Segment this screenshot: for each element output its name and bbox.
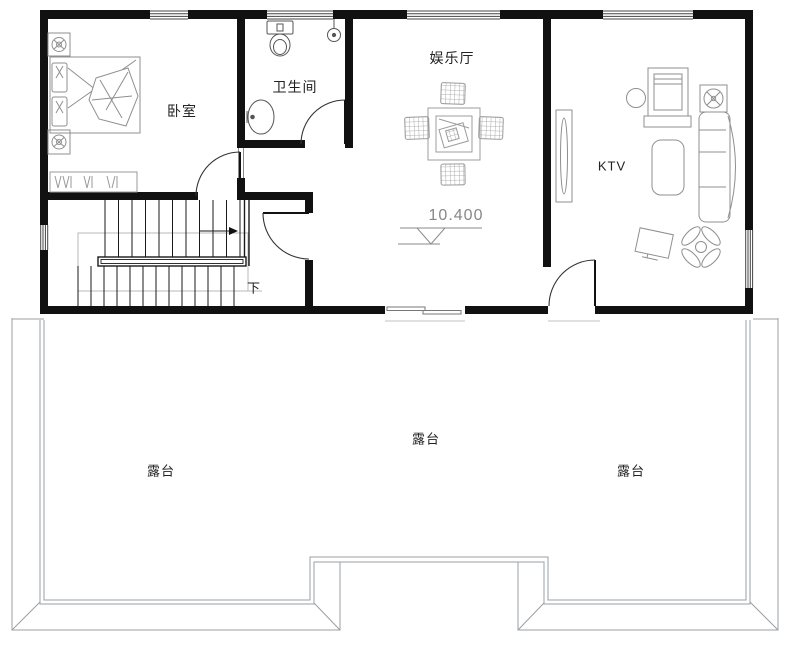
curved-sofa [699,112,736,222]
mahjong-set [405,83,504,186]
floor-plan: 卧室 卫生间 娱乐厅 KTV 10.400 下 露台 露台 露台 [0,0,789,645]
tv-cabinet [556,110,572,202]
toilet [267,21,293,56]
stairs-down-label: 下 [247,278,261,297]
elevation-symbol [398,228,482,244]
mahjong-chair-south [441,164,465,185]
door-swings [196,100,595,306]
nightstand-lamp-top [48,33,70,56]
terrace-parapet [12,318,778,630]
mahjong-table [428,108,480,160]
ktv-door [549,260,595,306]
stool [627,89,646,108]
room-label-bedroom: 卧室 [167,101,197,121]
terrace-label-center: 露台 [412,429,440,448]
ktv-furniture [556,68,736,270]
floor-drain [328,19,341,42]
handrail [98,257,246,266]
nightstand-lamp-bottom [48,130,70,154]
coffee-table [652,140,684,195]
mahjong-chair-west [405,117,430,140]
room-label-bathroom: 卫生间 [273,77,318,97]
mahjong-chair-east [479,117,504,140]
floorplan-drawing [0,0,789,645]
room-label-ktv: KTV [598,159,626,174]
terrace-label-left: 露台 [147,461,175,480]
bedroom-furniture [48,33,140,192]
exterior-walls [40,10,753,314]
staircase [78,200,262,306]
wardrobe [50,172,137,192]
karaoke-screen [644,68,691,127]
sliding-door [387,307,461,314]
speaker [700,85,727,112]
bathroom-door [301,100,345,144]
double-bed [50,57,140,133]
plant [679,224,723,270]
bedroom-door [196,152,240,196]
windows [41,11,753,288]
elevation-value: 10.400 [429,207,484,225]
washbasin [247,100,274,134]
display-screen [634,228,673,262]
hall-door [263,213,309,259]
terrace-label-right: 露台 [617,461,645,480]
room-label-entertainment-hall: 娱乐厅 [430,48,475,68]
direction-arrow [200,227,238,235]
mahjong-chair-north [441,83,466,105]
